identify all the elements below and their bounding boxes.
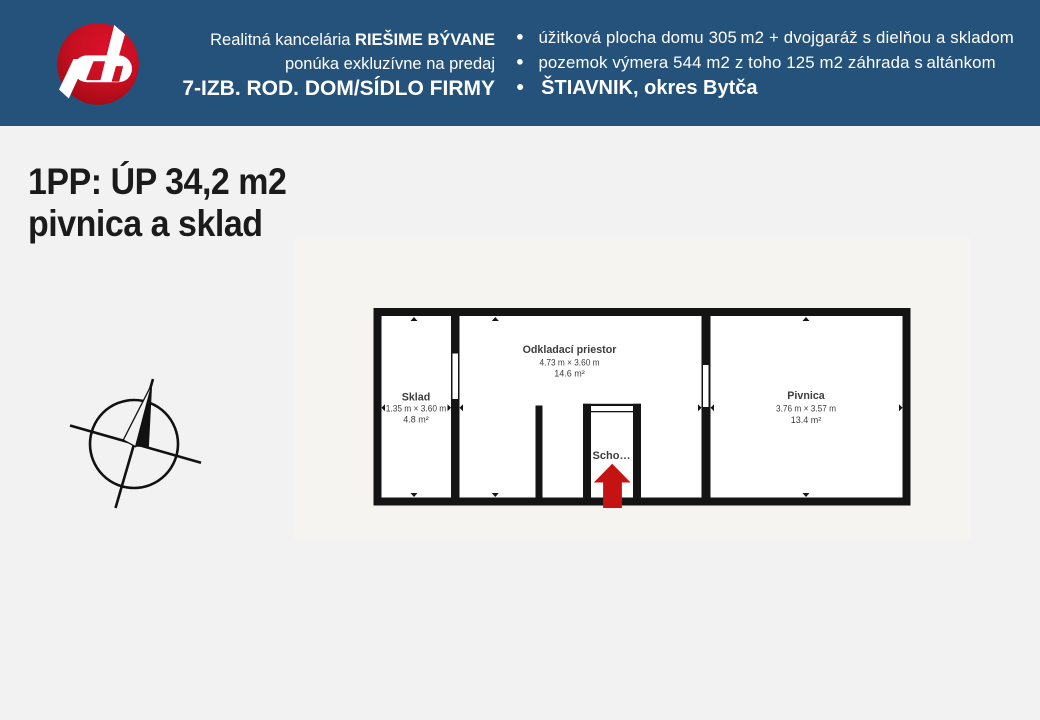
svg-text:4.8 m²: 4.8 m² xyxy=(403,414,429,424)
svg-text:13.4 m²: 13.4 m² xyxy=(791,415,822,425)
svg-text:Sklad: Sklad xyxy=(402,392,431,404)
svg-text:14.6 m²: 14.6 m² xyxy=(554,368,585,378)
svg-text:3.76 m × 3.57 m: 3.76 m × 3.57 m xyxy=(776,404,836,414)
svg-text:Scho…: Scho… xyxy=(593,450,631,462)
svg-text:1.35 m × 3.60 m: 1.35 m × 3.60 m xyxy=(386,404,447,414)
svg-text:Pivnica: Pivnica xyxy=(787,390,825,402)
svg-text:Odkladací priestor: Odkladací priestor xyxy=(523,344,617,356)
svg-text:4.73 m × 3.60 m: 4.73 m × 3.60 m xyxy=(540,357,600,367)
